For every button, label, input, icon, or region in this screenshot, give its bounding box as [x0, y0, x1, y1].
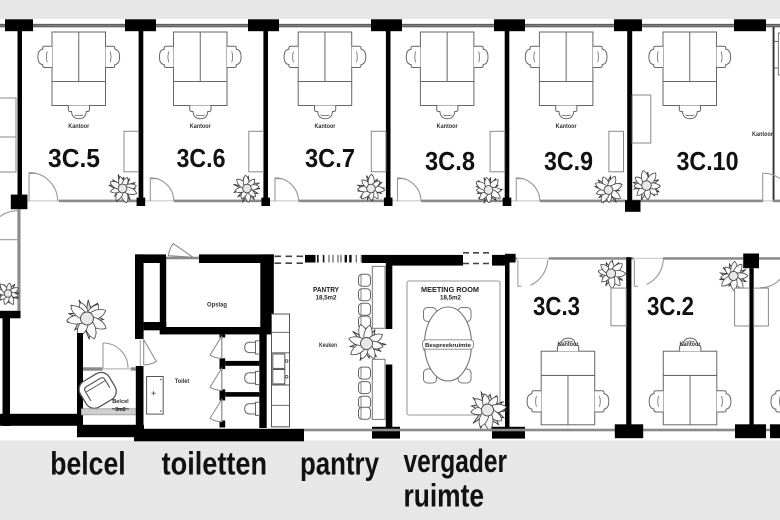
svg-text:PANTRY: PANTRY	[313, 285, 339, 294]
svg-text:Bespreekruimte: Bespreekruimte	[425, 343, 471, 349]
svg-text:3C.7: 3C.7	[305, 143, 355, 173]
svg-text:3C.10: 3C.10	[677, 146, 739, 176]
svg-text:3C.8: 3C.8	[425, 146, 475, 176]
svg-text:Keuken: Keuken	[319, 342, 337, 349]
svg-text:3C.5: 3C.5	[48, 143, 100, 173]
svg-text:Opslag: Opslag	[207, 302, 227, 309]
svg-text:MEETING ROOM: MEETING ROOM	[421, 287, 479, 294]
svg-text:Kantoor: Kantoor	[314, 123, 336, 130]
svg-text:Kantoor: Kantoor	[556, 123, 578, 130]
svg-text:belcel: belcel	[50, 446, 125, 482]
svg-text:18,5m2: 18,5m2	[316, 294, 338, 301]
svg-text:Belcel: Belcel	[112, 399, 129, 405]
svg-text:3C.9: 3C.9	[544, 146, 593, 176]
svg-text:Toilet: Toilet	[175, 378, 190, 385]
svg-text:pantry: pantry	[300, 446, 379, 482]
svg-text:3C.3: 3C.3	[533, 291, 580, 321]
svg-text:Kantoor: Kantoor	[437, 123, 459, 130]
svg-text:vergader: vergader	[404, 443, 508, 479]
svg-text:ruimte: ruimte	[404, 477, 485, 513]
svg-text:Kantoor: Kantoor	[752, 131, 774, 138]
svg-text:3m2: 3m2	[115, 407, 125, 413]
svg-text:3C.2: 3C.2	[647, 291, 694, 321]
svg-text:18,5m2: 18,5m2	[440, 294, 462, 301]
svg-text:Kantoor: Kantoor	[68, 123, 90, 130]
svg-text:Kantoor: Kantoor	[558, 341, 580, 348]
svg-text:Kantoor: Kantoor	[190, 123, 212, 130]
svg-text:Kantoor: Kantoor	[680, 341, 702, 348]
svg-text:toiletten: toiletten	[162, 446, 268, 482]
svg-text:3C.6: 3C.6	[177, 143, 226, 173]
